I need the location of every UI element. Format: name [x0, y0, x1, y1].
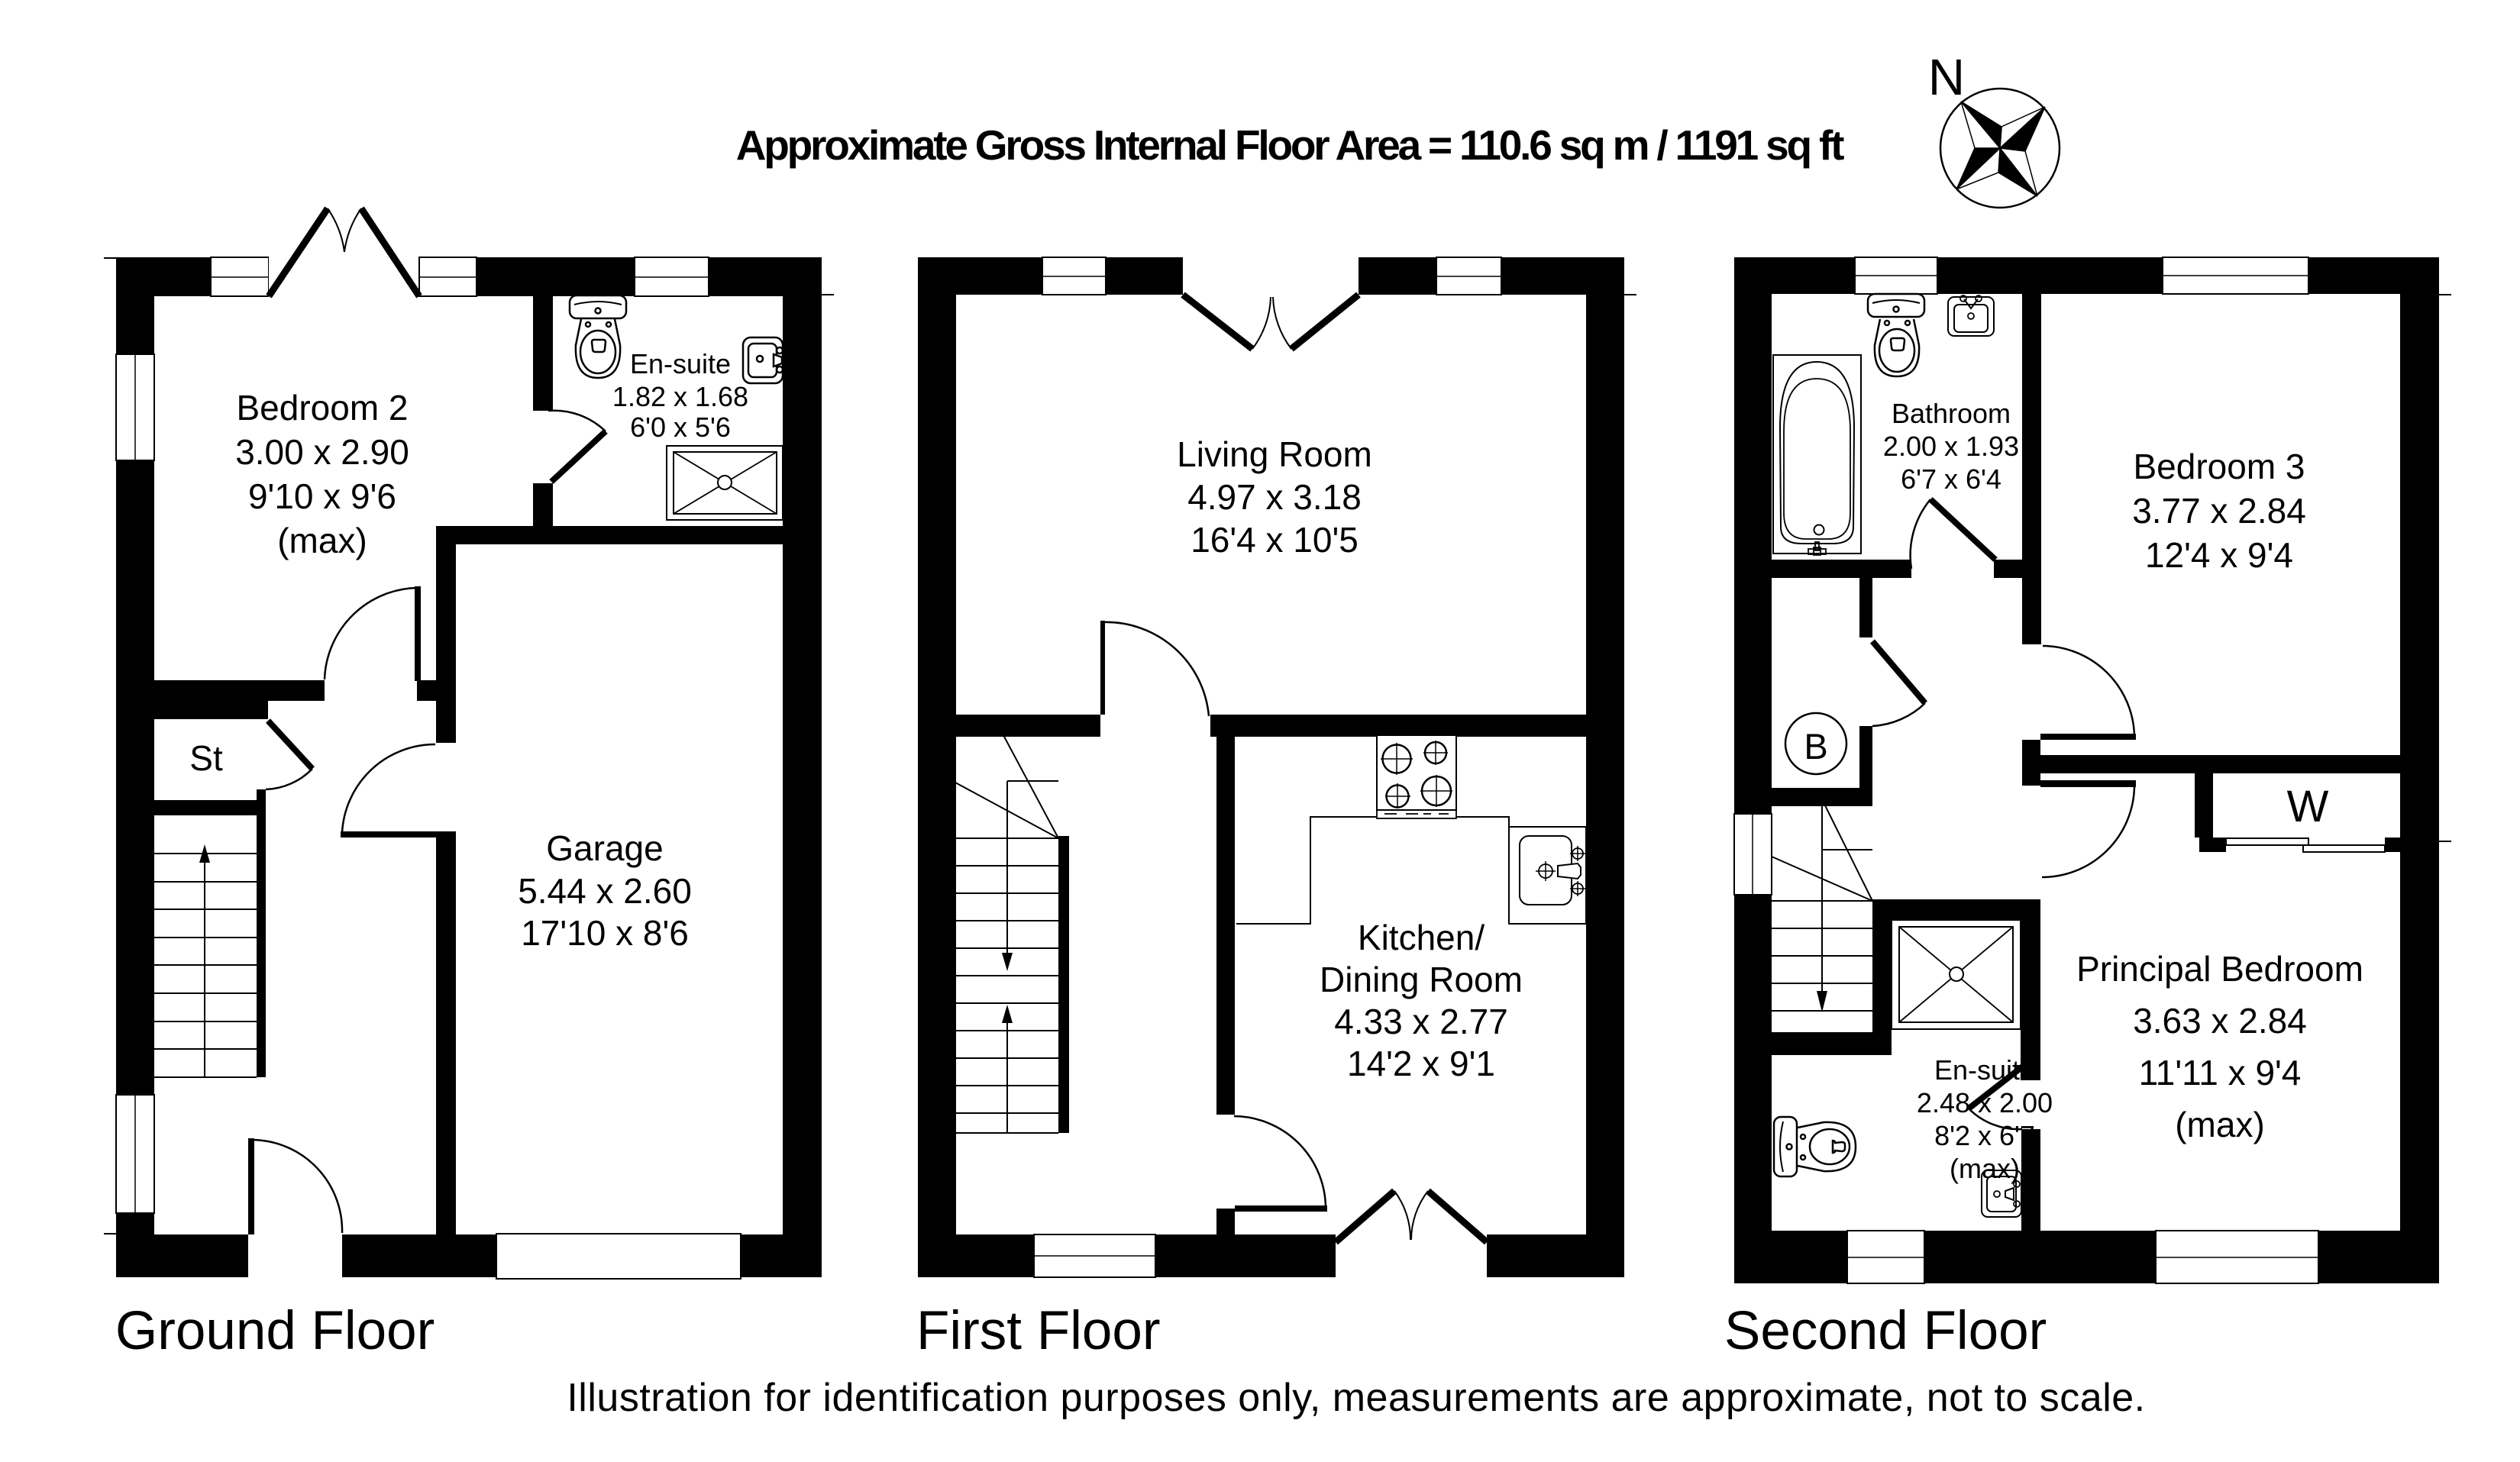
svg-text:Garage: Garage [546, 828, 663, 868]
svg-text:Bedroom 3: Bedroom 3 [2133, 447, 2305, 486]
svg-text:3.00 x 2.90: 3.00 x 2.90 [235, 432, 409, 472]
svg-text:Second Floor: Second Floor [1724, 1301, 2047, 1361]
svg-text:6'7 x 6'4: 6'7 x 6'4 [1901, 463, 2001, 495]
svg-text:(max): (max) [1950, 1153, 2020, 1184]
svg-text:N: N [1928, 49, 1965, 106]
svg-text:4.97 x 3.18: 4.97 x 3.18 [1187, 477, 1362, 517]
svg-text:Bathroom: Bathroom [1892, 398, 2011, 429]
svg-text:Kitchen/: Kitchen/ [1358, 918, 1485, 957]
svg-text:3.77 x 2.84: 3.77 x 2.84 [2132, 491, 2306, 531]
svg-text:1.82 x 1.68: 1.82 x 1.68 [612, 381, 748, 412]
svg-text:W: W [2287, 782, 2329, 831]
svg-text:5.44 x 2.60: 5.44 x 2.60 [518, 871, 692, 911]
svg-text:B: B [1804, 726, 1827, 767]
svg-text:Living Room: Living Room [1177, 434, 1372, 474]
svg-text:4.33 x 2.77: 4.33 x 2.77 [1334, 1002, 1508, 1041]
svg-text:Dining Room: Dining Room [1320, 960, 1523, 999]
svg-text:2.00 x 1.93: 2.00 x 1.93 [1883, 431, 2019, 462]
svg-text:17'10 x 8'6: 17'10 x 8'6 [521, 913, 689, 953]
svg-text:(max): (max) [277, 521, 367, 560]
svg-text:12'4 x 9'4: 12'4 x 9'4 [2145, 535, 2293, 575]
svg-text:St: St [189, 738, 223, 778]
svg-text:Bedroom 2: Bedroom 2 [236, 388, 408, 428]
svg-text:8'2 x 6'7: 8'2 x 6'7 [1934, 1120, 2035, 1151]
svg-text:6'0 x 5'6: 6'0 x 5'6 [630, 411, 731, 443]
svg-text:First Floor: First Floor [916, 1301, 1161, 1361]
svg-text:16'4 x 10'5: 16'4 x 10'5 [1191, 520, 1359, 560]
svg-text:Principal Bedroom: Principal Bedroom [2076, 949, 2363, 989]
svg-text:En-suite: En-suite [1934, 1054, 2035, 1086]
svg-text:Approximate Gross Internal Flo: Approximate Gross Internal Floor Area = … [736, 121, 1844, 169]
svg-text:(max): (max) [2175, 1105, 2265, 1144]
svg-text:Illustration for identificatio: Illustration for identification purposes… [567, 1376, 2145, 1420]
svg-text:En-suite: En-suite [630, 348, 731, 379]
svg-text:3.63 x 2.84: 3.63 x 2.84 [2133, 1001, 2307, 1041]
svg-text:11'11 x 9'4: 11'11 x 9'4 [2139, 1053, 2302, 1092]
svg-text:2.48 x 2.00: 2.48 x 2.00 [1917, 1087, 2053, 1118]
svg-text:9'10 x 9'6: 9'10 x 9'6 [248, 476, 396, 516]
svg-text:14'2 x 9'1: 14'2 x 9'1 [1347, 1044, 1495, 1083]
svg-text:Ground Floor: Ground Floor [115, 1301, 435, 1361]
